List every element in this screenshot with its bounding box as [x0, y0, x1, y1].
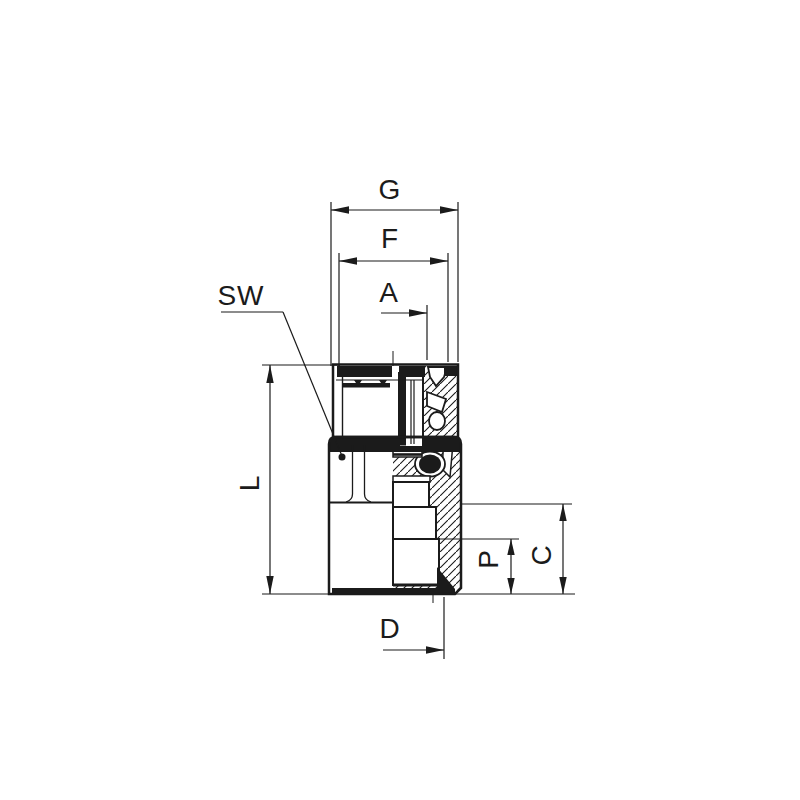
leader-dot: [339, 454, 346, 461]
hex-flat-chamfer: [346, 494, 353, 502]
dimension-label-g: G: [379, 176, 402, 204]
dimension-label-c: C: [528, 544, 556, 565]
arrow-down: [507, 578, 514, 594]
arrow-left: [331, 206, 349, 214]
hex-top-band: [329, 437, 461, 452]
arrow-right: [426, 646, 444, 654]
arrow-left: [339, 257, 357, 265]
dimension-A: [381, 305, 427, 360]
arrow-down: [266, 576, 273, 594]
bottom-edge-band: [332, 588, 437, 594]
fitting-section-view: [0, 0, 800, 800]
dimension-F: [339, 253, 448, 366]
hex-flat-chamfer: [365, 494, 372, 502]
bore-step-3: [393, 507, 436, 539]
arrow-right: [430, 257, 448, 265]
release-collar-band: [337, 366, 392, 377]
dimension-label-a: A: [379, 279, 399, 307]
release-collar-band: [399, 366, 425, 377]
arrow-right: [440, 206, 458, 214]
arrow-up: [507, 539, 514, 555]
dimension-label-d: D: [379, 615, 400, 643]
part-body: [329, 351, 461, 603]
arrow-up: [559, 504, 566, 521]
thread-runout-line: [393, 584, 437, 587]
collet-finger: [400, 376, 406, 446]
leader-SW: [221, 312, 346, 461]
dimension-label-f: F: [381, 225, 399, 253]
dimension-label-l: L: [236, 475, 264, 492]
thread-line: [393, 453, 422, 456]
thread-bore: [393, 539, 439, 585]
dimension-label-p: P: [475, 549, 503, 569]
arrow-right: [409, 309, 427, 317]
release-collar-band: [444, 366, 457, 376]
technical-drawing: G F A SW L P C D: [0, 0, 800, 800]
arrow-up: [266, 365, 273, 383]
dimension-label-sw: SW: [217, 282, 264, 310]
bore-step-2: [393, 482, 429, 507]
collet-detail-3: [429, 412, 445, 430]
arrow-down: [559, 577, 566, 594]
